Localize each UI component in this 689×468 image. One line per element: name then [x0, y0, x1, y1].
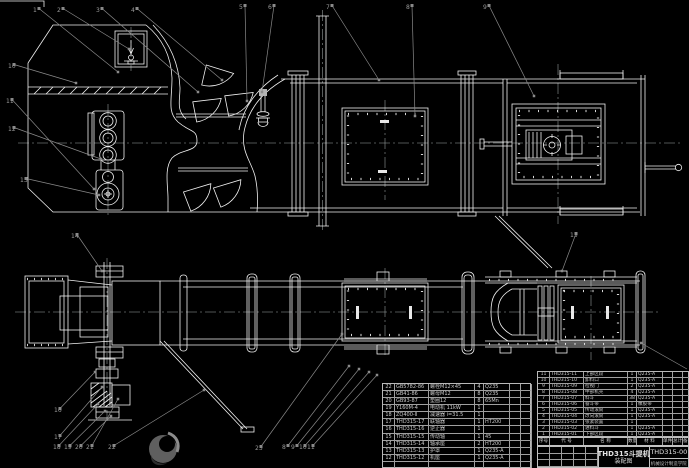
- bom-header-cell: 序号: [538, 438, 550, 445]
- swirl-blob: [149, 433, 178, 465]
- roller-stack: [88, 111, 124, 210]
- bom-cell: [484, 412, 510, 419]
- bom-cell: [521, 405, 532, 412]
- revision-cell: [562, 454, 574, 461]
- takeup-rod-left: [484, 142, 512, 146]
- bom-cell: 4: [475, 384, 484, 391]
- belt-section: [316, 16, 329, 226]
- bom-cell: [510, 462, 521, 468]
- bom-cell: [484, 426, 510, 433]
- revision-cell: [550, 454, 562, 461]
- revision-cell: [586, 460, 598, 467]
- bom-cell: 螺母M12: [429, 391, 475, 398]
- balloon-number: 9: [291, 444, 295, 451]
- bom-cell: 21: [383, 391, 395, 398]
- bom-cell: GB93-87: [395, 398, 429, 405]
- boot-section-side: [480, 70, 682, 268]
- revision-cell: [562, 447, 574, 454]
- bom-cell: 8: [475, 398, 484, 405]
- balloon-callout: 8: [282, 365, 350, 451]
- drawing-number-cell: THD315-00 机械设计制造学院: [650, 447, 688, 467]
- bom-cell: THD315-14: [395, 441, 429, 448]
- title-block: THD315斗提机 装配图 THD315-00 机械设计制造学院: [537, 446, 689, 468]
- revision-cell: [574, 454, 586, 461]
- bom-cell: [484, 462, 510, 468]
- revision-grid: [538, 447, 598, 467]
- bom-cell: THD315-12: [395, 455, 429, 462]
- door-handle: [356, 306, 359, 319]
- balloon-callout: 3: [96, 7, 199, 93]
- bom-cell: [510, 391, 521, 398]
- revision-cell: [550, 460, 562, 467]
- bucket-bolt-detail: [256, 89, 270, 127]
- bom-cell: 逆止器: [429, 426, 475, 433]
- balloon-callout: 8: [406, 4, 416, 117]
- bucket-belt: [176, 114, 248, 171]
- bom-cell: [521, 426, 532, 433]
- bom-cell: [510, 455, 521, 462]
- bom-cell: 19: [383, 405, 395, 412]
- balloon-number: 8: [406, 4, 410, 11]
- balloon-callout: 10: [8, 63, 77, 84]
- bom-cell: 1: [475, 412, 484, 419]
- revision-cell: [562, 460, 574, 467]
- door-handle: [378, 170, 387, 173]
- balloon-callout: 11: [307, 374, 378, 451]
- door-handle: [571, 306, 574, 319]
- bom-cell: [510, 398, 521, 405]
- bom-cell: 1: [475, 455, 484, 462]
- bom-header-cell: 总计: [673, 438, 683, 445]
- bom-header-cell: 材 料: [637, 438, 663, 445]
- head-station-plan: [25, 262, 160, 420]
- bom-header-cell: 数量: [628, 438, 637, 445]
- balloon-callout: 13: [20, 177, 100, 196]
- bom-cell: [475, 462, 484, 468]
- support-strut-side: [495, 216, 552, 268]
- bom-cell: [521, 434, 532, 441]
- bom-cell: HT200: [484, 441, 510, 448]
- bom-header-cell: 名 称: [584, 438, 628, 445]
- bom-cell: [395, 462, 429, 468]
- revision-cell: [574, 460, 586, 467]
- balloon-number: 7: [326, 4, 330, 11]
- bom-cell: THD315-17: [395, 419, 429, 426]
- bom-cell: [510, 405, 521, 412]
- balloon-callout: 16: [54, 371, 96, 414]
- balloon-number: 8: [282, 444, 286, 451]
- bom-cell: 20: [383, 398, 395, 405]
- balloon-callout: [640, 342, 687, 369]
- bom-cell: HT200: [484, 419, 510, 426]
- bom-header-cell: 代 号: [550, 438, 584, 445]
- bom-cell: 1: [475, 434, 484, 441]
- side-view: [28, 16, 682, 268]
- balloon-callout: 9: [291, 368, 360, 451]
- bom-cell: 17: [383, 419, 395, 426]
- revision-cell: [586, 447, 598, 454]
- bom-cell: 18: [383, 412, 395, 419]
- organization: 机械设计制造学院: [650, 459, 688, 467]
- bom-cell: Q235: [484, 391, 510, 398]
- balloon-callout: 4: [131, 7, 223, 81]
- bom-cell: [510, 434, 521, 441]
- bom-cell: [484, 405, 510, 412]
- bom-cell: 22: [383, 384, 395, 391]
- balloon-number: 6: [268, 4, 272, 11]
- bom-cell: 传动轴: [429, 434, 475, 441]
- bom-cell: [510, 412, 521, 419]
- balloon-callout: 5: [239, 4, 248, 102]
- bom-cell: [521, 384, 532, 391]
- drawing-title: THD315斗提机: [598, 450, 650, 458]
- bom-cell: [521, 398, 532, 405]
- bom-header-cell: 单件: [663, 438, 673, 445]
- cad-drawing-canvas: 1234567891011121314151617181920212223891…: [0, 0, 689, 468]
- bom-cell: [510, 441, 521, 448]
- bom-cell: 1: [475, 405, 484, 412]
- bom-cell: 轴承座: [429, 441, 475, 448]
- bom-cell: 13: [383, 448, 395, 455]
- bom-cell: 14: [383, 441, 395, 448]
- rail-hatch: [34, 87, 161, 94]
- revision-cell: [574, 447, 586, 454]
- bom-cell: 12: [383, 455, 395, 462]
- bom-cell: 8: [475, 391, 484, 398]
- balloon-number: 5: [239, 4, 243, 11]
- bom-cell: [521, 441, 532, 448]
- flange-rings: [180, 271, 645, 354]
- casing-plan: [160, 281, 640, 345]
- casing-flanges: [288, 71, 476, 216]
- bom-cell: [429, 462, 475, 468]
- balloon-number: 4: [131, 7, 135, 14]
- bom-header-cell: 备注: [683, 438, 689, 445]
- bom-cell: GB41-86: [395, 391, 429, 398]
- drawing-subtitle: 装配图: [615, 458, 633, 465]
- bom-cell: 机座: [429, 455, 475, 462]
- bom-cell: Q235-A: [484, 455, 510, 462]
- bom-cell: 1: [475, 448, 484, 455]
- balloon-number: 9: [483, 4, 487, 11]
- bom-cell: 螺栓M12×45: [429, 384, 475, 391]
- revision-cell: [538, 454, 550, 461]
- bom-cell: [510, 419, 521, 426]
- bom-cell: THD315-16: [395, 426, 429, 433]
- bom-cell: 2: [475, 441, 484, 448]
- bom-cell: [510, 426, 521, 433]
- bom-cell: [510, 384, 521, 391]
- bom-cell: 45: [484, 434, 510, 441]
- bom-cell: 65Mn: [484, 398, 510, 405]
- drawing-number: THD315-00: [650, 447, 688, 459]
- bucket-casing: [146, 25, 285, 212]
- balloon-callout: 14: [71, 233, 103, 272]
- bom-cell: 1: [475, 419, 484, 426]
- door-handle: [380, 120, 389, 123]
- bom-cell: 减速器 i=31.5: [429, 412, 475, 419]
- bom-cell: Q235: [484, 384, 510, 391]
- balloon-callout: 15: [561, 232, 578, 272]
- bom-cell: THD315-13: [395, 448, 429, 455]
- bom-cell: Q235-A: [484, 448, 510, 455]
- bom-table-header: 序号代 号名 称数量材 料单件总计备注: [537, 437, 689, 446]
- support-strut-plan: [160, 341, 254, 432]
- bom-cell: 1: [475, 426, 484, 433]
- bom-cell: ZQ400-Ⅱ: [395, 412, 429, 419]
- bom-cell: [521, 391, 532, 398]
- bom-cell: [521, 455, 532, 462]
- balloon-callout: 7: [326, 4, 380, 81]
- door-handle: [409, 306, 412, 319]
- bom-cell: [521, 419, 532, 426]
- revision-cell: [586, 454, 598, 461]
- bom-table-left: 22GB5782-86螺栓M12×454Q23521GB41-86螺母M128Q…: [382, 383, 531, 468]
- bom-cell: 联轴器: [429, 419, 475, 426]
- buckets: [181, 56, 253, 213]
- balloon-number: 3: [96, 7, 100, 14]
- balloon-number: 1: [33, 7, 37, 14]
- bom-cell: [510, 448, 521, 455]
- door-handle: [606, 306, 609, 319]
- bom-cell: [521, 462, 532, 468]
- title-cell: THD315斗提机 装配图: [598, 447, 650, 467]
- balloon-number: 2: [57, 7, 61, 14]
- bom-cell: [521, 412, 532, 419]
- bom-cell: THD315-15: [395, 434, 429, 441]
- bom-cell: 15: [383, 434, 395, 441]
- bom-cell: 垫圈12: [429, 398, 475, 405]
- bom-cell: 16: [383, 426, 395, 433]
- bom-cell: Y160M-4: [395, 405, 429, 412]
- balloon-callout: 6: [261, 4, 276, 93]
- bom-table-right: 11THD315-11上部区段1Q235-A10THD315-10卸料口1Q23…: [537, 371, 689, 437]
- revision-cell: [538, 447, 550, 454]
- balloon-callout: 10: [299, 371, 370, 451]
- bom-cell: [521, 448, 532, 455]
- bom-cell: GB5782-86: [395, 384, 429, 391]
- sheet-frame-corner: [0, 1, 44, 7]
- revision-cell: [538, 460, 550, 467]
- balloon-callout: 2: [57, 7, 130, 50]
- bom-cell: [383, 462, 395, 468]
- bom-cell: 护罩: [429, 448, 475, 455]
- takeup-rod-right: [645, 162, 676, 173]
- bom-cell: 电动机 11kW: [429, 405, 475, 412]
- revision-cell: [550, 447, 562, 454]
